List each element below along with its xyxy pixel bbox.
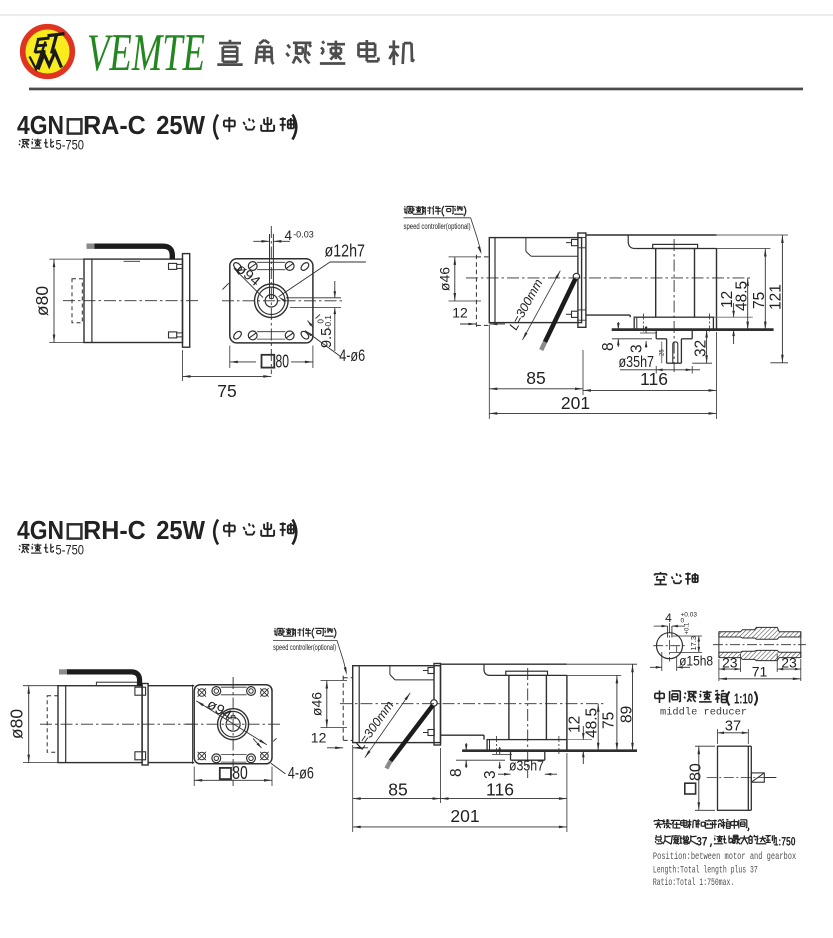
svg-text:37: 37 xyxy=(725,719,741,735)
svg-text:85: 85 xyxy=(526,368,545,388)
svg-text:ø46: ø46 xyxy=(437,267,453,291)
svg-text:4-ø6: 4-ø6 xyxy=(339,347,365,365)
svg-text:25W: 25W xyxy=(156,515,205,545)
svg-text:48.5: 48.5 xyxy=(734,281,751,311)
svg-text:48.5: 48.5 xyxy=(584,708,601,738)
svg-text:ø35h7: ø35h7 xyxy=(509,758,544,775)
svg-text:116: 116 xyxy=(640,369,668,389)
svg-text:VEMTE: VEMTE xyxy=(87,24,205,82)
svg-text:23: 23 xyxy=(722,655,738,671)
svg-text:5-750: 5-750 xyxy=(56,543,85,558)
svg-text:80: 80 xyxy=(232,763,248,783)
svg-text:-0.1: -0.1 xyxy=(324,315,333,329)
svg-text:9.5: 9.5 xyxy=(319,328,335,348)
svg-text:RH-C: RH-C xyxy=(83,515,146,545)
svg-text:8: 8 xyxy=(600,342,617,351)
svg-text:Ratio:Total 1:750max.: Ratio:Total 1:750max. xyxy=(653,877,734,889)
svg-text:80: 80 xyxy=(276,351,290,371)
svg-text:12: 12 xyxy=(311,730,327,746)
svg-text:+0.1: +0.1 xyxy=(685,622,691,635)
svg-text:89: 89 xyxy=(619,706,636,723)
svg-text:75: 75 xyxy=(751,292,768,309)
svg-text:Position:between motor and gea: Position:between motor and gearbox xyxy=(653,851,796,863)
svg-text:37: 37 xyxy=(696,836,707,848)
svg-text:25W: 25W xyxy=(156,110,205,140)
svg-text:1:10: 1:10 xyxy=(734,692,753,708)
svg-text:8: 8 xyxy=(448,768,465,777)
svg-text:RA-C: RA-C xyxy=(83,110,146,140)
svg-text:ø80: ø80 xyxy=(7,709,27,739)
svg-text:3: 3 xyxy=(629,344,646,353)
svg-text:116: 116 xyxy=(486,780,514,800)
svg-text:80: 80 xyxy=(687,763,704,781)
svg-text:speed controller(optional): speed controller(optional) xyxy=(273,643,336,652)
svg-text:75: 75 xyxy=(601,712,618,729)
svg-text:4: 4 xyxy=(285,228,293,243)
svg-text:1:750: 1:750 xyxy=(774,836,796,848)
svg-text:speed controller(optional): speed controller(optional) xyxy=(404,222,471,231)
svg-text:121: 121 xyxy=(768,284,785,310)
svg-text:Length:Total length plus 37: Length:Total length plus 37 xyxy=(653,865,758,877)
svg-text:ø15h8: ø15h8 xyxy=(679,653,713,668)
svg-text:23: 23 xyxy=(781,655,797,671)
svg-text:ø80: ø80 xyxy=(32,286,52,316)
svg-text:32: 32 xyxy=(693,340,710,357)
svg-text:75: 75 xyxy=(217,381,236,401)
svg-text:-0.03: -0.03 xyxy=(293,230,314,240)
svg-text:5-750: 5-750 xyxy=(56,138,85,153)
svg-text:12: 12 xyxy=(567,716,584,733)
svg-text:middle reducer: middle reducer xyxy=(660,707,747,719)
svg-text:201: 201 xyxy=(450,806,479,826)
svg-text:4GN: 4GN xyxy=(17,515,64,545)
svg-text:4: 4 xyxy=(665,611,672,625)
svg-text:85: 85 xyxy=(388,780,407,800)
svg-text:ø46: ø46 xyxy=(309,692,325,716)
svg-text:25: 25 xyxy=(660,349,666,356)
svg-text:12: 12 xyxy=(452,305,468,321)
svg-text:4-ø6: 4-ø6 xyxy=(288,765,314,783)
svg-text:ø12h7: ø12h7 xyxy=(325,241,366,261)
svg-text:17.3: 17.3 xyxy=(689,636,698,651)
svg-text:71: 71 xyxy=(752,664,768,680)
svg-text:201: 201 xyxy=(561,393,590,413)
svg-text:4GN: 4GN xyxy=(17,110,64,140)
svg-text:3: 3 xyxy=(482,770,499,779)
